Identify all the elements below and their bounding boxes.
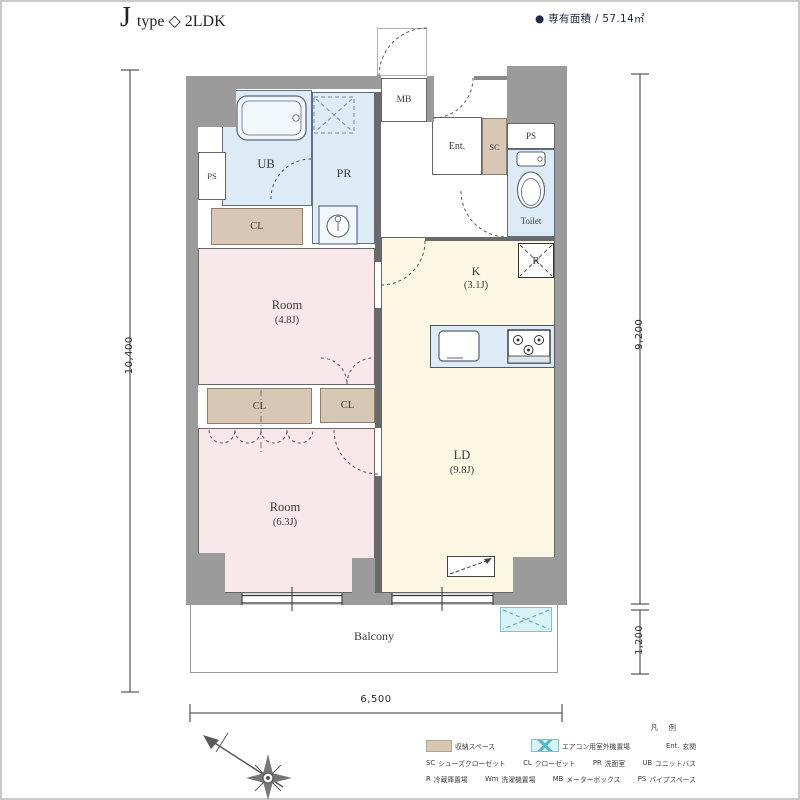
legend-row-2: SC シューズクローゼット CL クローゼット PR 洗面室 UB ユニットバス bbox=[426, 758, 696, 768]
legend-abbr: PS bbox=[638, 775, 646, 783]
ac-spot bbox=[447, 556, 495, 577]
front-door-arc bbox=[433, 78, 473, 118]
pipe-space-left: PS bbox=[198, 152, 226, 200]
label-ld: LD (9.8J) bbox=[412, 448, 512, 477]
legend-label: 収納スペース bbox=[455, 741, 495, 751]
floor-area-note: ● 専有面積 / 57.14㎡ bbox=[535, 11, 645, 26]
legend-title: 凡 例 bbox=[426, 722, 696, 733]
fridge-space: R bbox=[518, 243, 554, 278]
plan-title-type: type ◇ 2LDK bbox=[137, 13, 226, 30]
legend-label: 洗面室 bbox=[605, 758, 625, 768]
legend-item-mb: MB メーターボックス bbox=[553, 774, 621, 784]
outdoor-unit-space bbox=[500, 607, 552, 632]
storage-swatch-icon bbox=[426, 740, 452, 752]
label-room2: Room (6.3J) bbox=[235, 500, 335, 529]
legend-item-fridge: R 冷蔵庫置場 bbox=[426, 774, 468, 784]
legend-label: 冷蔵庫置場 bbox=[434, 774, 468, 784]
legend-abbr: MB bbox=[553, 775, 564, 783]
legend-abbr: SC bbox=[426, 759, 435, 767]
legend-item-ub: UB ユニットバス bbox=[643, 758, 696, 768]
legend-abbr: R bbox=[426, 775, 431, 783]
dim-bottom: 6,500 bbox=[336, 694, 416, 707]
label-balcony: Balcony bbox=[322, 629, 426, 644]
wall-right bbox=[555, 66, 567, 605]
label-kitchen-name: K bbox=[436, 264, 516, 279]
closet-mid-right: CL bbox=[320, 388, 375, 423]
legend-item-sc: SC シューズクローゼット bbox=[426, 758, 506, 768]
legend-label: 玄関 bbox=[682, 741, 696, 751]
legend-item-entrance: Ent. 玄関 bbox=[666, 741, 696, 751]
legend-item-pr: PR 洗面室 bbox=[593, 758, 625, 768]
wall-ldk-top bbox=[425, 237, 555, 241]
wall-stub-mb bbox=[427, 76, 434, 122]
legend-label: パイプスペース bbox=[649, 774, 696, 784]
legend-item-storage: 収納スペース bbox=[426, 740, 495, 752]
wall-corner-top-left bbox=[186, 76, 236, 127]
legend: 凡 例 収納スペース エアコン用室外機置場 Ent. 玄関 SC シューズクロー… bbox=[426, 722, 696, 784]
label-room1-name: Room bbox=[237, 298, 337, 314]
closet-mid-left: CL bbox=[207, 388, 312, 424]
legend-row-3: R 冷蔵庫置場 Wm 洗濯機置場 MB メーターボックス PS パイプスペース bbox=[426, 774, 696, 784]
label-room2-size: (6.3J) bbox=[235, 516, 335, 529]
label-room1-size: (4.8J) bbox=[237, 314, 337, 327]
label-ld-name: LD bbox=[412, 448, 512, 464]
label-pr: PR bbox=[316, 166, 372, 181]
legend-label: ユニットバス bbox=[655, 758, 696, 768]
meter-box: MB bbox=[381, 78, 427, 122]
pillar-bottom-middle bbox=[352, 558, 375, 605]
label-ub: UB bbox=[238, 157, 294, 173]
legend-row-1: 収納スペース エアコン用室外機置場 Ent. 玄関 bbox=[426, 739, 696, 752]
legend-abbr: Wm bbox=[485, 775, 498, 783]
legend-abbr: CL bbox=[523, 759, 532, 767]
shoe-closet: SC bbox=[482, 118, 507, 175]
label-kitchen-size: (3.1J) bbox=[436, 279, 516, 292]
kitchen-counter bbox=[430, 325, 555, 368]
legend-label: 洗濯機置場 bbox=[501, 774, 535, 784]
legend-label: エアコン用室外機置場 bbox=[562, 741, 630, 751]
wall-entry-line bbox=[474, 76, 507, 80]
label-kitchen: K (3.1J) bbox=[436, 264, 516, 292]
outdoor-unit-swatch-icon bbox=[531, 739, 559, 752]
dim-right-main: 9,200 bbox=[634, 292, 647, 376]
label-room2-name: Room bbox=[235, 500, 335, 516]
pillar-bottom-right bbox=[513, 557, 567, 605]
legend-label: シューズクローゼット bbox=[438, 758, 506, 768]
legend-abbr: UB bbox=[643, 759, 653, 767]
pillar-bottom-left bbox=[186, 553, 225, 605]
legend-item-cl: CL クローゼット bbox=[523, 758, 575, 768]
plan-title: Jtype ◇ 2LDK bbox=[120, 2, 226, 34]
legend-abbr: Ent. bbox=[666, 742, 679, 750]
label-room1: Room (4.8J) bbox=[237, 298, 337, 327]
legend-label: クローゼット bbox=[535, 758, 576, 768]
wall-left bbox=[186, 76, 198, 605]
legend-abbr: PR bbox=[593, 759, 602, 767]
legend-item-outdoor-unit: エアコン用室外機置場 bbox=[531, 739, 630, 752]
wall-rooms-ldk-divider bbox=[375, 92, 381, 593]
dim-right-balcony: 1,200 bbox=[634, 598, 646, 682]
pipe-space-top: PS bbox=[507, 123, 555, 149]
dim-left: 10,400 bbox=[124, 313, 137, 397]
legend-item-ps: PS パイプスペース bbox=[638, 774, 696, 784]
floorplan-page: { "header": { "title_letter": "J", "titl… bbox=[0, 0, 800, 800]
compass-icon bbox=[203, 733, 292, 800]
plan-title-letter: J bbox=[120, 2, 131, 33]
entry-porch bbox=[377, 28, 427, 76]
label-ld-size: (9.8J) bbox=[412, 464, 512, 477]
wall-bottom bbox=[186, 593, 567, 605]
entrance: Ent. bbox=[432, 117, 482, 175]
toilet-door-arc bbox=[461, 191, 507, 237]
closet-top: CL bbox=[211, 208, 303, 245]
label-toilet: Toilet bbox=[507, 216, 555, 227]
legend-item-washer: Wm 洗濯機置場 bbox=[485, 774, 535, 784]
legend-label: メーターボックス bbox=[566, 774, 620, 784]
